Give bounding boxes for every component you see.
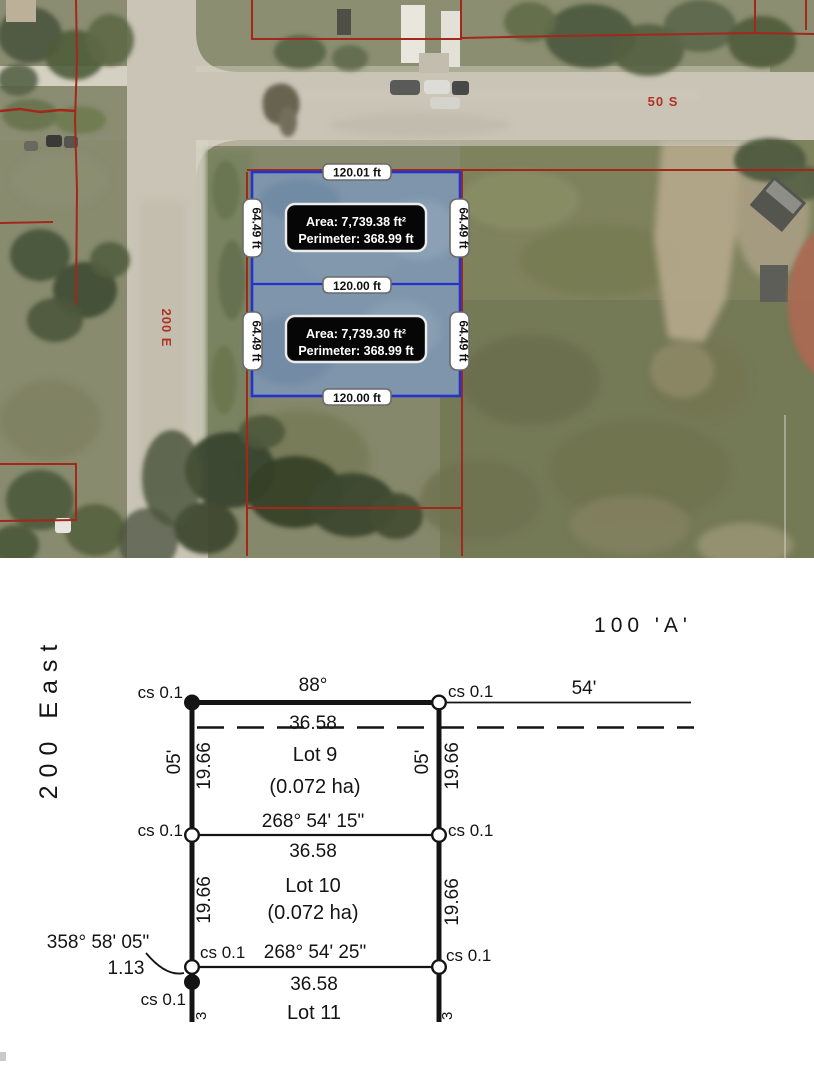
svg-text:cs 0.1: cs 0.1: [446, 946, 491, 965]
svg-text:120.01 ft: 120.01 ft: [333, 166, 381, 180]
svg-text:120.00 ft: 120.00 ft: [333, 391, 381, 405]
svg-text:200 E: 200 E: [159, 309, 174, 348]
svg-text:54': 54': [572, 678, 597, 699]
svg-text:88°: 88°: [299, 675, 328, 696]
svg-text:19.66: 19.66: [194, 742, 215, 790]
svg-text:64.49 ft: 64.49 ft: [250, 320, 264, 361]
svg-text:Lot 10: Lot 10: [285, 875, 341, 897]
svg-text:(0.072 ha): (0.072 ha): [267, 902, 358, 924]
svg-text:19.66: 19.66: [194, 876, 215, 924]
svg-text:Lot 9: Lot 9: [293, 744, 337, 766]
svg-text:Area: 7,739.38 ft²: Area: 7,739.38 ft²: [306, 215, 406, 229]
svg-text:3: 3: [439, 1012, 456, 1020]
svg-text:200 East: 200 East: [35, 637, 63, 800]
svg-text:36.58: 36.58: [289, 713, 337, 734]
svg-text:05': 05': [164, 750, 185, 775]
svg-text:36.58: 36.58: [289, 841, 337, 862]
svg-text:3: 3: [193, 1012, 210, 1020]
svg-text:64.49 ft: 64.49 ft: [457, 320, 471, 361]
svg-text:cs 0.1: cs 0.1: [448, 682, 493, 701]
svg-text:cs 0.1: cs 0.1: [448, 821, 493, 840]
svg-text:268° 54' 25": 268° 54' 25": [264, 942, 367, 963]
svg-text:cs 0.1: cs 0.1: [200, 943, 245, 962]
svg-text:268° 54' 15": 268° 54' 15": [262, 811, 365, 832]
svg-text:cs 0.1: cs 0.1: [138, 683, 183, 702]
svg-text:50 S: 50 S: [648, 94, 679, 109]
svg-text:64.49 ft: 64.49 ft: [457, 207, 471, 248]
svg-text:cs 0.1: cs 0.1: [141, 990, 186, 1009]
svg-text:Area: 7,739.30 ft²: Area: 7,739.30 ft²: [306, 327, 406, 341]
svg-text:19.66: 19.66: [442, 742, 463, 790]
svg-text:Perimeter: 368.99 ft: Perimeter: 368.99 ft: [298, 344, 414, 358]
svg-text:cs 0.1: cs 0.1: [138, 821, 183, 840]
svg-text:19.66: 19.66: [442, 878, 463, 926]
svg-text:(0.072 ha): (0.072 ha): [269, 776, 360, 798]
svg-text:100 'A': 100 'A': [594, 614, 692, 637]
svg-text:05': 05': [412, 750, 433, 775]
svg-text:64.49 ft: 64.49 ft: [250, 207, 264, 248]
svg-text:Perimeter: 368.99 ft: Perimeter: 368.99 ft: [298, 232, 414, 246]
svg-text:120.00 ft: 120.00 ft: [333, 279, 381, 293]
svg-text:36.58: 36.58: [290, 974, 338, 995]
svg-text:Lot 11: Lot 11: [287, 1002, 341, 1024]
svg-text:1.13: 1.13: [108, 958, 145, 979]
svg-text:358° 58' 05": 358° 58' 05": [47, 932, 150, 953]
